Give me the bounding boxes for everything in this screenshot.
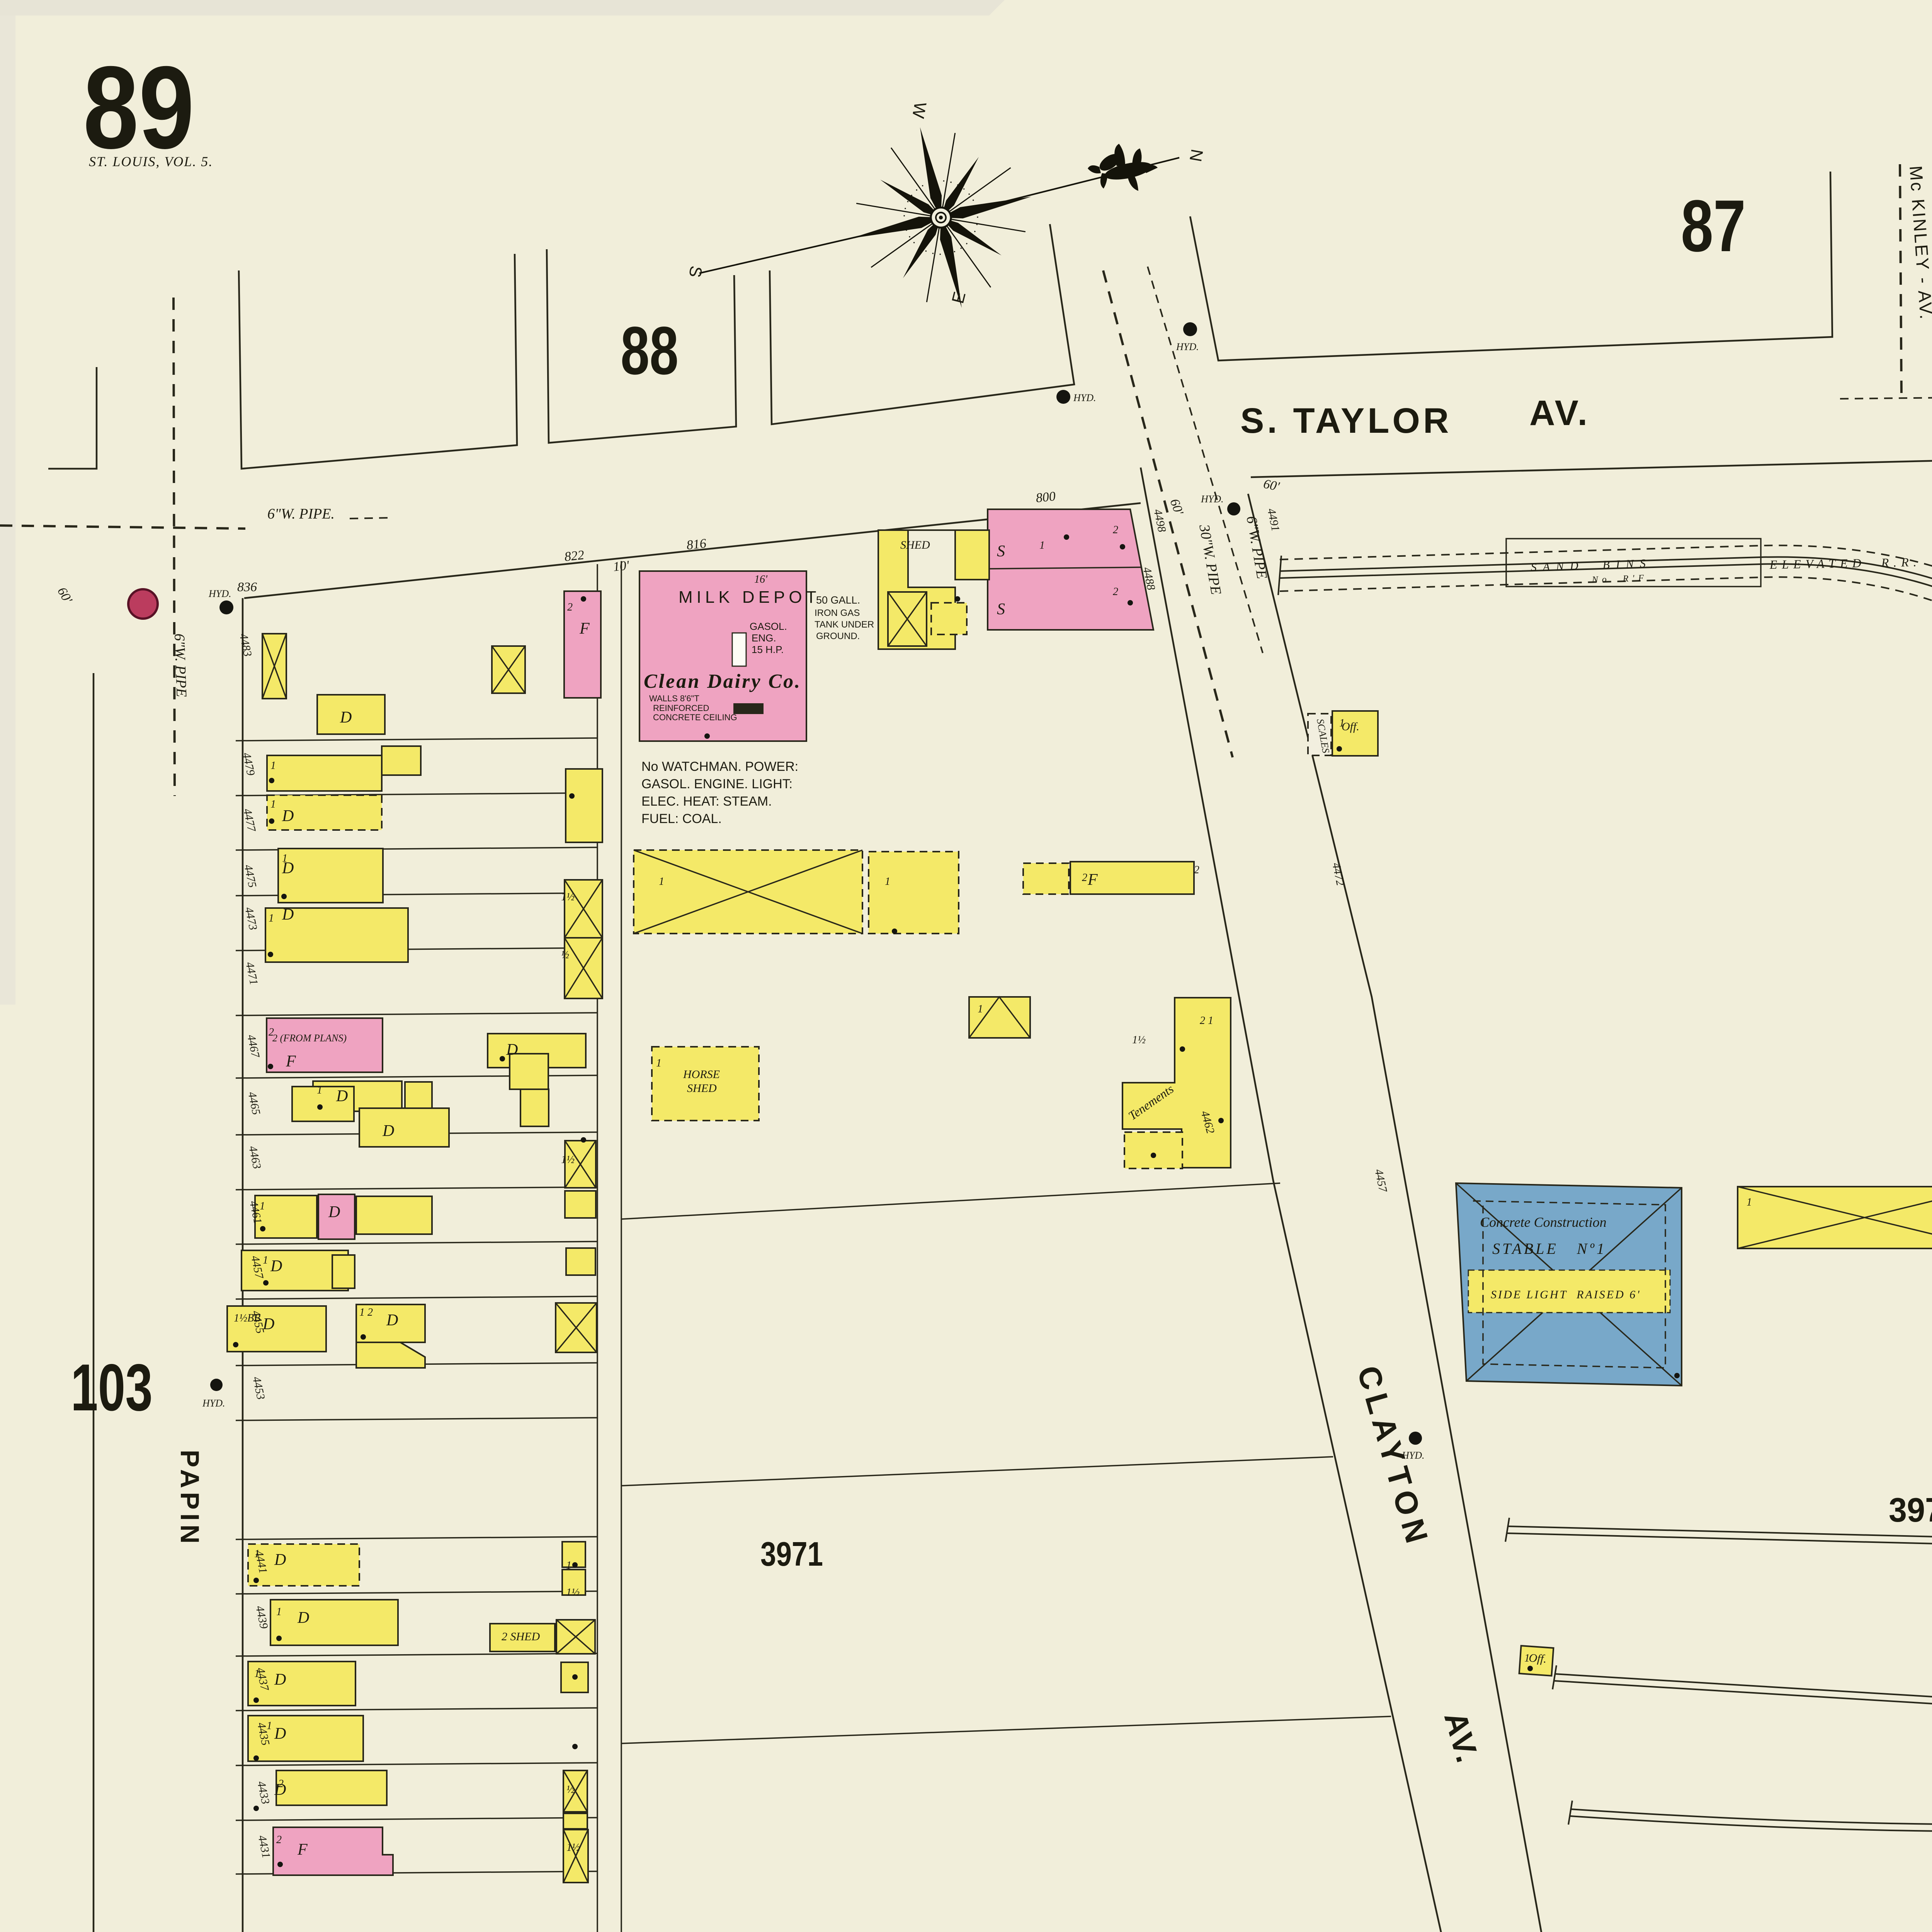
svg-text:D: D <box>274 1725 286 1743</box>
svg-text:1: 1 <box>978 1003 983 1015</box>
svg-text:REINFORCED: REINFORCED <box>653 703 709 713</box>
svg-text:103: 103 <box>71 1350 153 1425</box>
svg-text:15 H.P.: 15 H.P. <box>752 644 784 655</box>
svg-text:GROUND.: GROUND. <box>816 631 860 641</box>
svg-text:D: D <box>274 1671 286 1689</box>
svg-text:D: D <box>282 807 294 825</box>
svg-text:IRON GAS: IRON GAS <box>815 608 860 618</box>
svg-text:AV.: AV. <box>1529 393 1590 433</box>
svg-text:10': 10' <box>612 558 630 574</box>
svg-text:822: 822 <box>564 548 585 564</box>
svg-text:D: D <box>270 1257 282 1275</box>
svg-text:S: S <box>997 543 1005 560</box>
svg-text:1: 1 <box>276 1606 282 1618</box>
svg-text:2: 2 <box>1194 864 1199 876</box>
svg-text:HYD.: HYD. <box>1401 1450 1425 1461</box>
svg-text:HYD.: HYD. <box>1073 392 1096 403</box>
svg-text:D: D <box>340 709 352 726</box>
svg-text:1: 1 <box>269 912 274 924</box>
svg-text:SHED: SHED <box>687 1082 717 1095</box>
svg-text:1: 1 <box>566 1560 571 1571</box>
svg-text:836: 836 <box>237 580 257 594</box>
svg-text:HYD.: HYD. <box>1201 493 1224 505</box>
svg-text:D: D <box>382 1122 394 1140</box>
svg-text:F: F <box>1087 871 1098 889</box>
svg-text:GASOL.: GASOL. <box>750 621 787 632</box>
svg-text:HORSE: HORSE <box>683 1068 720 1081</box>
svg-text:1½: 1½ <box>566 1842 580 1854</box>
svg-text:1: 1 <box>1039 539 1045 551</box>
svg-text:1: 1 <box>1524 1652 1530 1664</box>
svg-text:D: D <box>282 906 294 923</box>
svg-text:D: D <box>262 1315 274 1333</box>
svg-text:2: 2 <box>1113 586 1118 598</box>
svg-text:1: 1 <box>659 876 664 888</box>
svg-text:D: D <box>506 1041 518 1059</box>
svg-text:1: 1 <box>260 1200 265 1212</box>
svg-text:1: 1 <box>263 1254 268 1266</box>
svg-text:GASOL. ENGINE. LIGHT:: GASOL. ENGINE. LIGHT: <box>641 777 793 791</box>
svg-text:WALLS 8'6"T: WALLS 8'6"T <box>649 694 699 703</box>
svg-text:1½: 1½ <box>561 1154 575 1166</box>
svg-text:1½: 1½ <box>566 1587 580 1599</box>
svg-text:1: 1 <box>282 852 287 864</box>
svg-text:2 (FROM PLANS): 2 (FROM PLANS) <box>272 1032 347 1044</box>
svg-text:F: F <box>297 1841 308 1859</box>
svg-text:50 GALL.: 50 GALL. <box>816 594 860 606</box>
svg-text:2: 2 <box>278 1778 284 1790</box>
svg-text:F: F <box>579 620 590 638</box>
svg-text:STABLE Nº1: STABLE Nº1 <box>1492 1240 1607 1257</box>
svg-text:1½: 1½ <box>561 891 575 903</box>
svg-text:2: 2 <box>276 1834 282 1846</box>
svg-text:Off.: Off. <box>1529 1651 1547 1665</box>
svg-text:D: D <box>336 1087 348 1105</box>
svg-text:3971: 3971 <box>760 1535 823 1573</box>
svg-text:1: 1 <box>1339 717 1345 729</box>
svg-text:6"W. PIPE.: 6"W. PIPE. <box>267 506 335 522</box>
svg-text:½: ½ <box>566 1784 575 1796</box>
svg-text:SIDE LIGHT RAISED 6': SIDE LIGHT RAISED 6' <box>1491 1288 1641 1301</box>
svg-text:D: D <box>386 1311 398 1329</box>
svg-text:1: 1 <box>254 1668 260 1680</box>
svg-text:816: 816 <box>686 536 707 553</box>
svg-text:88: 88 <box>621 313 679 389</box>
svg-text:2: 2 <box>567 601 573 613</box>
svg-text:2: 2 <box>269 1026 274 1038</box>
svg-text:D: D <box>274 1551 286 1569</box>
svg-text:ENG.: ENG. <box>752 632 776 644</box>
svg-text:D: D <box>328 1203 340 1221</box>
svg-text:HYD.: HYD. <box>1176 341 1199 352</box>
svg-text:1: 1 <box>317 1084 322 1096</box>
svg-text:1: 1 <box>267 1720 272 1732</box>
svg-text:3970: 3970 <box>1889 1491 1932 1529</box>
svg-text:S: S <box>997 600 1005 618</box>
svg-text:1: 1 <box>254 1548 260 1560</box>
svg-text:1: 1 <box>1747 1196 1752 1208</box>
svg-text:2 SHED: 2 SHED <box>502 1630 540 1643</box>
svg-text:Concrete Construction: Concrete Construction <box>1480 1214 1607 1230</box>
svg-text:PAPIN: PAPIN <box>175 1450 204 1548</box>
svg-text:1½BB: 1½BB <box>234 1312 260 1324</box>
svg-text:2 1: 2 1 <box>1200 1015 1213 1027</box>
svg-text:S. TAYLOR: S. TAYLOR <box>1240 401 1452 440</box>
svg-text:F: F <box>286 1053 296 1070</box>
svg-text:2: 2 <box>1113 524 1118 536</box>
svg-text:ELEC. HEAT: STEAM.: ELEC. HEAT: STEAM. <box>641 794 772 809</box>
svg-text:FUEL: COAL.: FUEL: COAL. <box>641 811 722 826</box>
svg-text:1: 1 <box>270 760 276 772</box>
svg-text:ST. LOUIS, VOL. 5.: ST. LOUIS, VOL. 5. <box>89 154 213 169</box>
svg-text:CONCRETE CEILING: CONCRETE CEILING <box>653 713 737 722</box>
svg-text:D: D <box>297 1609 309 1627</box>
svg-text:SHED: SHED <box>900 539 930 551</box>
svg-text:No WATCHMAN. POWER:: No WATCHMAN. POWER: <box>641 759 798 774</box>
svg-text:6"W. PIPE: 6"W. PIPE <box>171 633 190 697</box>
svg-text:No R'F: No R'F <box>1591 573 1648 585</box>
svg-text:1: 1 <box>270 798 276 810</box>
svg-text:2: 2 <box>1082 872 1087 884</box>
svg-text:½: ½ <box>561 949 569 961</box>
svg-text:MILK DEPOT: MILK DEPOT <box>679 588 820 607</box>
svg-text:1 2: 1 2 <box>359 1306 373 1318</box>
svg-text:1½: 1½ <box>1132 1034 1146 1046</box>
svg-text:1: 1 <box>885 876 890 888</box>
svg-text:800: 800 <box>1035 489 1056 505</box>
svg-text:16': 16' <box>754 573 768 585</box>
svg-text:Clean Dairy Co.: Clean Dairy Co. <box>644 670 801 692</box>
svg-text:HYD.: HYD. <box>208 588 231 599</box>
svg-text:1: 1 <box>656 1057 662 1069</box>
svg-text:HYD.: HYD. <box>202 1398 225 1409</box>
svg-text:TANK UNDER: TANK UNDER <box>815 619 874 630</box>
svg-text:87: 87 <box>1681 185 1746 267</box>
